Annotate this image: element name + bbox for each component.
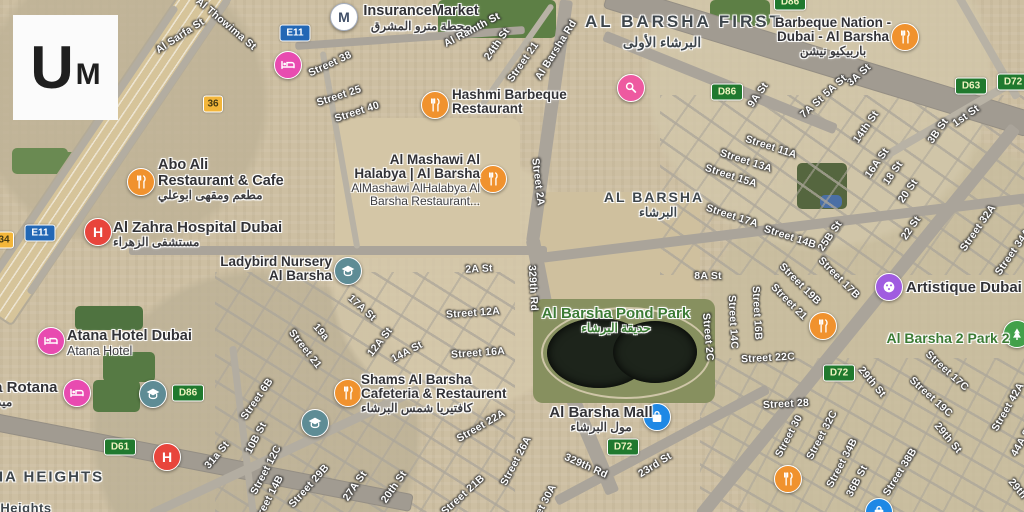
metro-icon[interactable]: M	[330, 3, 358, 31]
route-shield-36: 36	[203, 96, 223, 113]
hotel-icon[interactable]	[274, 51, 302, 79]
poi-label-al-zahra-hospital[interactable]: Al Zahra Hospital Dubaiمستشفى الزهراء	[113, 220, 282, 249]
street-label: Street 16B	[750, 286, 765, 341]
poi-label-line: Atana Hotel	[67, 345, 192, 358]
art-icon[interactable]	[875, 273, 903, 301]
restaurant-icon[interactable]	[479, 165, 507, 193]
hotel-icon[interactable]	[37, 327, 65, 355]
restaurant-icon[interactable]	[421, 91, 449, 119]
poi-label-line: Al Barsha	[220, 269, 332, 283]
restaurant-icon[interactable]	[127, 168, 155, 196]
street-label: Street 30A	[523, 482, 559, 512]
district-label: البرشاء	[639, 205, 677, 220]
school-icon[interactable]	[301, 409, 329, 437]
district-label: AL BARSHA	[604, 189, 704, 205]
poi-label-line: Al Barsha Pond Park	[542, 306, 690, 322]
poi-label-line: Media Rotana	[0, 380, 58, 396]
poi-label-line: Restaurant	[452, 102, 567, 116]
poi-label-al-barsha-2-park-2[interactable]: Al Barsha 2 Park 2	[887, 331, 1010, 346]
restaurant-icon[interactable]	[334, 379, 362, 407]
poi-label-al-barsha-pond-park[interactable]: Al Barsha Pond Parkحديقة البرشاء	[542, 306, 690, 335]
poi-label-line: AlMashawi AlHalabya Al	[351, 182, 480, 195]
vegetation-patch	[12, 148, 68, 174]
route-shield-d86: D86	[774, 0, 806, 11]
vegetation-patch	[75, 306, 143, 330]
restaurant-icon[interactable]	[809, 312, 837, 340]
poi-label-line: كافتيريا شمس البرشاء	[361, 402, 507, 415]
street-grid	[700, 358, 1024, 512]
route-shield-e11: E11	[280, 25, 311, 42]
poi-label-line: مول البرشاء	[549, 421, 652, 434]
hotel-icon[interactable]	[63, 379, 91, 407]
poi-label-line: مطعم ومقهى ابوعلي	[158, 189, 284, 202]
poi-label-insurance-market[interactable]: InsuranceMarketمحطة مترو المشرق	[363, 4, 478, 32]
poi-label-atana-hotel[interactable]: Atana Hotel DubaiAtana Hotel	[67, 329, 192, 358]
map-canvas[interactable]: U M Al Thowima StAl Sarfa StStreet 38Str…	[0, 0, 1024, 512]
district-label: Heights	[0, 501, 51, 512]
poi-label-line: Al Barsha Mall	[549, 405, 652, 421]
poi-label-line: Halabya | Al Barsha	[351, 167, 480, 181]
route-shield-d72: D72	[607, 439, 639, 456]
poi-label-hashmi-barbeque-restaurant[interactable]: Hashmi BarbequeRestaurant	[452, 88, 567, 117]
street-label: 8A St	[694, 270, 721, 282]
poi-label-line: Dubai - Al Barsha	[775, 30, 891, 44]
poi-label-line: محطة مترو المشرق	[363, 20, 478, 33]
poi-label-line: مستشفى الزهراء	[113, 236, 282, 249]
district-label: البرشاء الأولى	[623, 35, 701, 51]
um-logo-letter-u: U	[30, 38, 73, 98]
poi-label-line: Abo Ali	[158, 158, 284, 174]
school-icon[interactable]	[139, 380, 167, 408]
poi-label-shams-al-barsha[interactable]: Shams Al BarshaCafeteria & Restaurentكاف…	[361, 373, 507, 415]
poi-label-ladybird-nursery[interactable]: Ladybird NurseryAl Barsha	[220, 255, 332, 284]
poi-label-line: Cafeteria & Restaurent	[361, 387, 507, 401]
poi-label-artistique-dubai[interactable]: Artistique Dubai	[906, 280, 1022, 296]
poi-label-media-rotana[interactable]: Media Rotanaميديا روتانا	[0, 380, 58, 409]
school-icon[interactable]	[334, 257, 362, 285]
hospital-icon[interactable]: H	[84, 218, 112, 246]
route-shield-d63: D63	[955, 78, 987, 95]
poi-label-line: Al Zahra Hospital Dubai	[113, 220, 282, 236]
poi-label-line: حديقة البرشاء	[542, 322, 690, 335]
route-shield-d61: D61	[104, 439, 136, 456]
poi-label-line: Al Barsha 2 Park 2	[887, 331, 1010, 346]
poi-label-abo-ali-restaurant[interactable]: Abo AliRestaurant & Cafeمطعم ومقهى ابوعل…	[158, 158, 284, 202]
street-label: Street 14C	[726, 295, 741, 350]
district-label: AL BARSHA FIRST	[585, 12, 783, 32]
vegetation-patch	[93, 380, 140, 412]
street-label: Street 38	[307, 49, 354, 79]
um-logo[interactable]: U M	[13, 15, 118, 120]
street-label: 329th Rd	[526, 265, 540, 312]
route-shield-e11: E11	[25, 225, 56, 242]
street-label: 2A St	[465, 262, 493, 275]
poi-label-line: Barsha Restaurant...	[351, 195, 480, 208]
street-label: Street 28	[763, 397, 810, 411]
route-shield-34: 34	[0, 232, 14, 249]
route-shield-d72: D72	[997, 74, 1024, 91]
um-logo-letter-m: M	[76, 60, 101, 90]
poi-label-line: Atana Hotel Dubai	[67, 329, 192, 345]
route-shield-d86: D86	[711, 84, 743, 101]
poi-label-line: ميديا روتانا	[0, 396, 58, 409]
poi-label-line: InsuranceMarket	[363, 4, 478, 20]
restaurant-icon[interactable]	[891, 23, 919, 51]
route-shield-d72: D72	[823, 365, 855, 382]
poi-label-line: Restaurant & Cafe	[158, 174, 284, 190]
poi-label-line: باربيكيو نيشن	[775, 45, 891, 58]
poi-label-barbeque-nation[interactable]: Barbeque Nation -Dubai - Al Barshaباربيك…	[775, 16, 891, 58]
poi-label-al-mashawi-al-halabya[interactable]: Al Mashawi AlHalabya | Al BarshaAlMashaw…	[351, 153, 480, 208]
poi-label-al-barsha-mall[interactable]: Al Barsha Mallمول البرشاء	[549, 405, 652, 434]
beauty-icon[interactable]	[617, 74, 645, 102]
restaurant-icon[interactable]	[774, 465, 802, 493]
poi-label-line: Artistique Dubai	[906, 280, 1022, 296]
district-label: AL BARSHA HEIGHTS	[0, 469, 104, 486]
hospital-icon[interactable]: H	[153, 443, 181, 471]
route-shield-d86: D86	[172, 385, 204, 402]
